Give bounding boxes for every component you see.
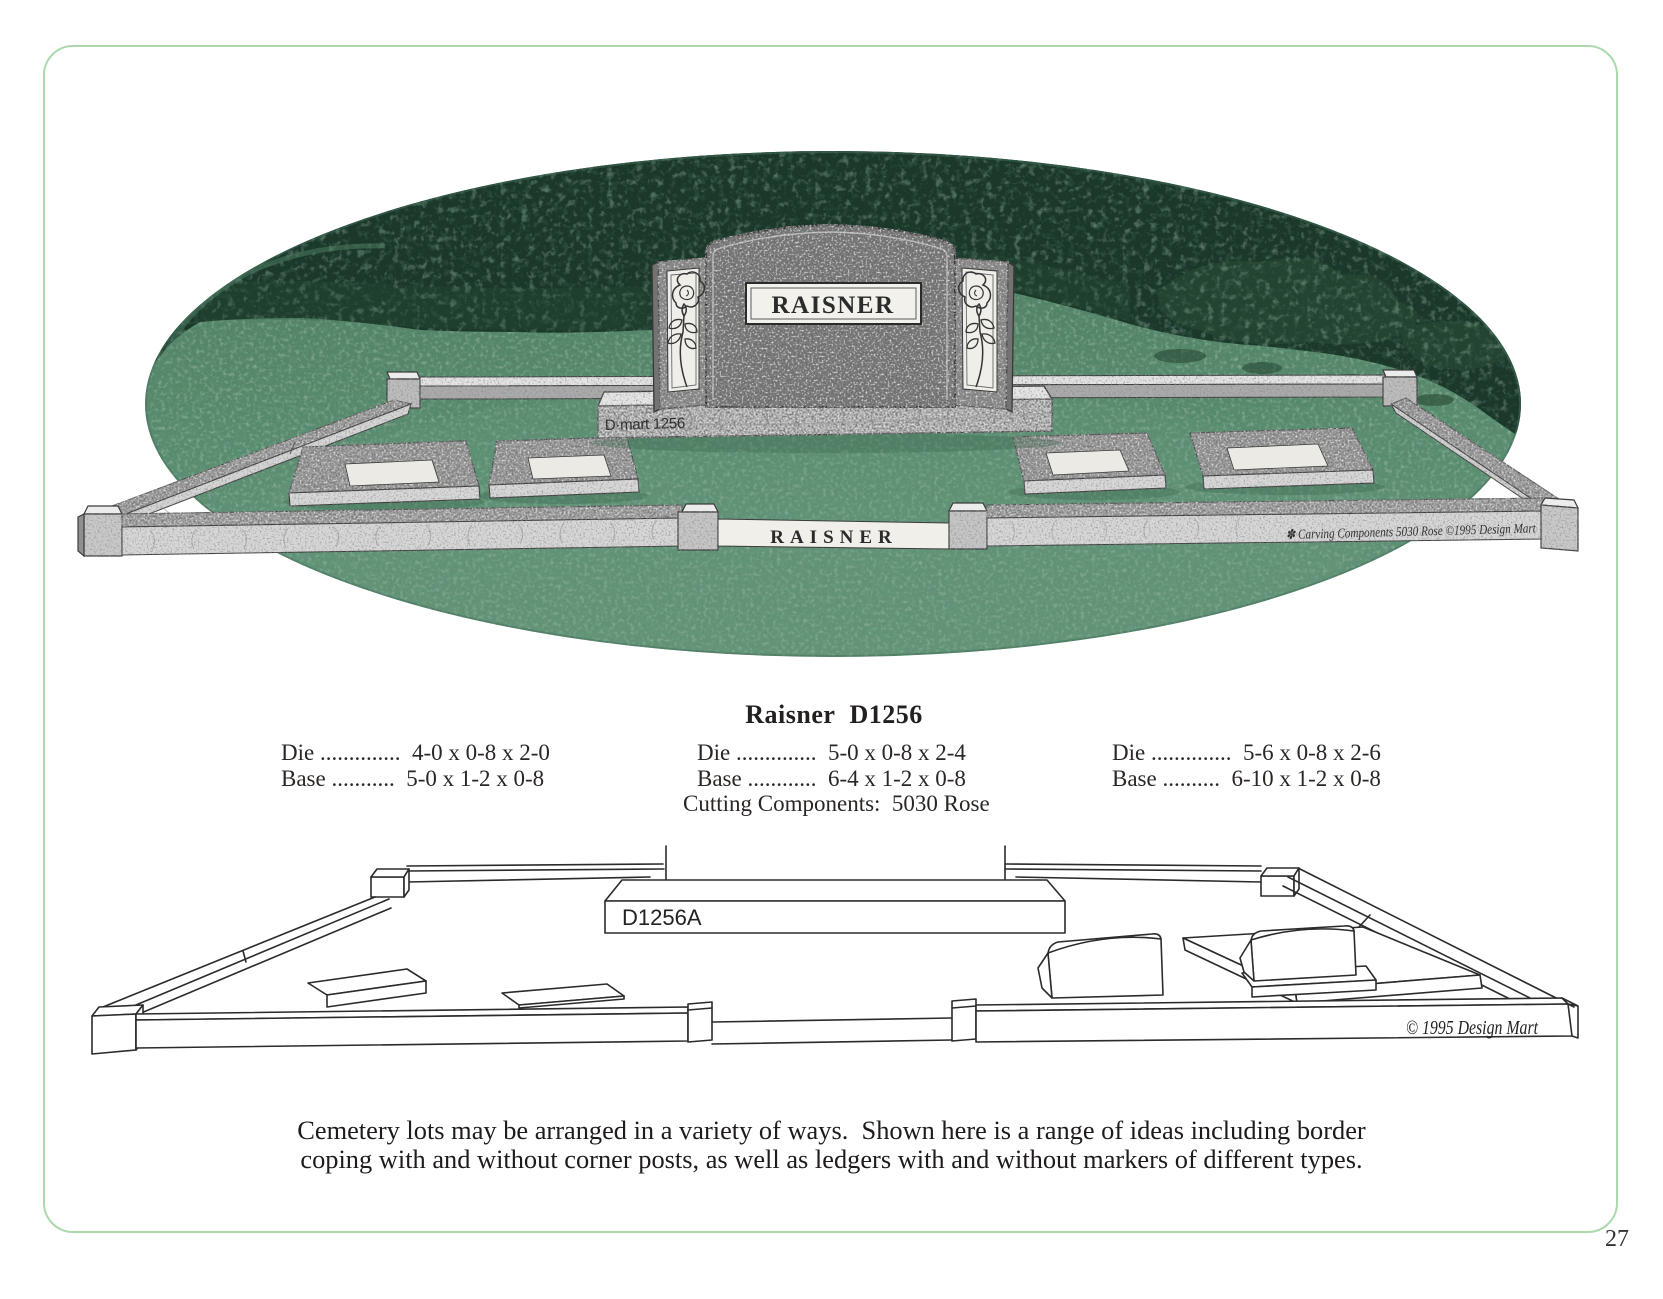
svg-text:RAISNER: RAISNER	[770, 527, 898, 548]
svg-text:D·mart 1256: D·mart 1256	[605, 415, 685, 434]
svg-text:RAISNER: RAISNER	[771, 292, 894, 319]
svg-text:© 1995 Design Mart: © 1995 Design Mart	[1406, 1017, 1538, 1039]
svg-text:D1256A: D1256A	[622, 905, 702, 930]
